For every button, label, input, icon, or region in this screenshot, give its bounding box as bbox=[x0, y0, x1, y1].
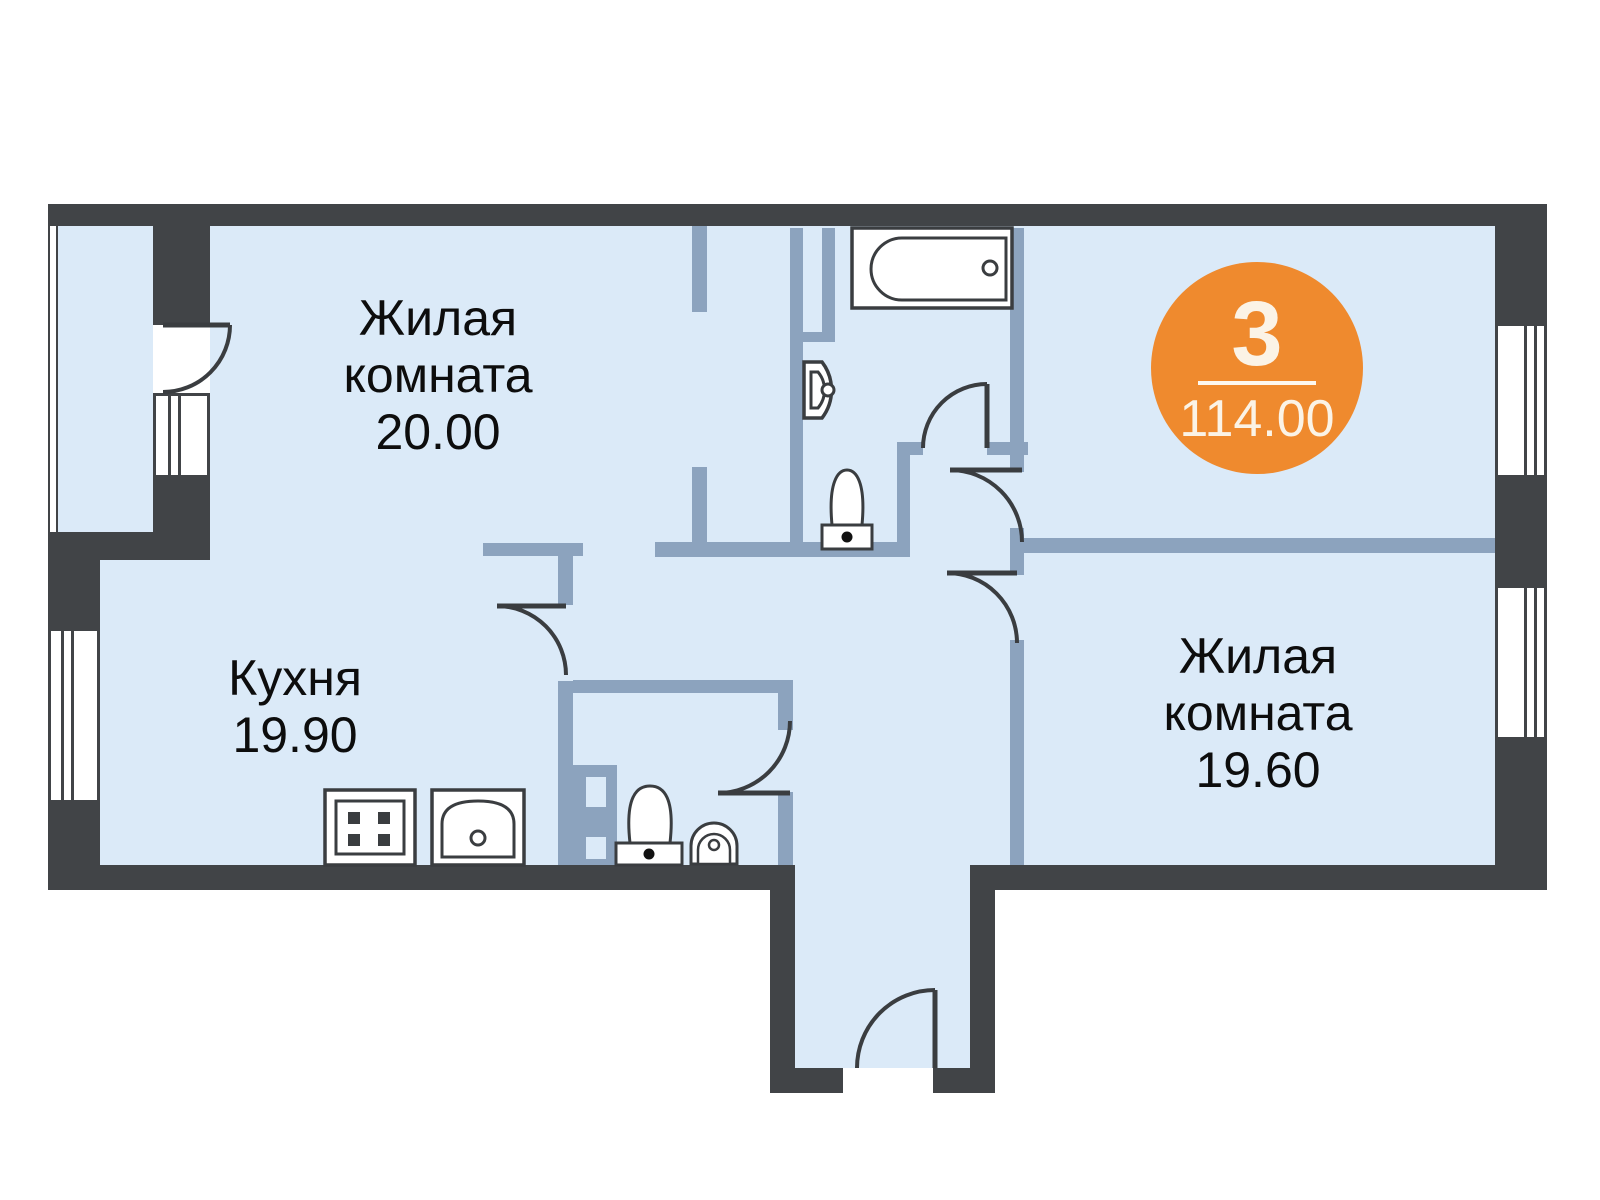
floor-plan: Жилая комната 20.00 Кухня 19.90 Жилая ко… bbox=[0, 0, 1600, 1200]
wc-washbasin-icon bbox=[691, 823, 737, 864]
doors-fixtures-layer bbox=[0, 0, 1600, 1200]
badge-total-area: 114.00 bbox=[1179, 393, 1334, 445]
room-name: Кухня bbox=[175, 650, 415, 707]
door-bathroom-icon bbox=[923, 384, 987, 448]
door-room-upper-icon bbox=[950, 470, 1022, 542]
room-area: 19.90 bbox=[175, 707, 415, 764]
badge-rooms-count: 3 bbox=[1231, 291, 1282, 377]
badge-divider bbox=[1198, 381, 1316, 385]
room-label-kitchen: Кухня 19.90 bbox=[175, 650, 415, 764]
door-balcony-icon bbox=[163, 325, 230, 392]
door-entrance-icon bbox=[857, 990, 935, 1068]
door-room-lower-icon bbox=[947, 573, 1017, 643]
room-area: 19.60 bbox=[1088, 742, 1428, 799]
door-wc-icon bbox=[718, 721, 790, 793]
room-label-living-1: Жилая комната 20.00 bbox=[273, 290, 603, 461]
bathtub-icon bbox=[852, 228, 1012, 308]
wc-toilet-icon bbox=[616, 786, 682, 865]
room-area: 20.00 bbox=[273, 404, 603, 461]
room-label-living-2: Жилая комната 19.60 bbox=[1088, 628, 1428, 799]
bathroom-toilet-icon bbox=[822, 470, 872, 549]
door-kitchen-icon bbox=[497, 606, 566, 675]
stove-icon bbox=[325, 790, 415, 865]
room-name: Жилая комната bbox=[273, 290, 603, 404]
kitchen-sink-icon bbox=[432, 790, 524, 865]
room-name: Жилая комната bbox=[1088, 628, 1428, 742]
bathroom-sink-icon bbox=[804, 362, 834, 418]
apartment-badge: 3 114.00 bbox=[1151, 262, 1363, 474]
